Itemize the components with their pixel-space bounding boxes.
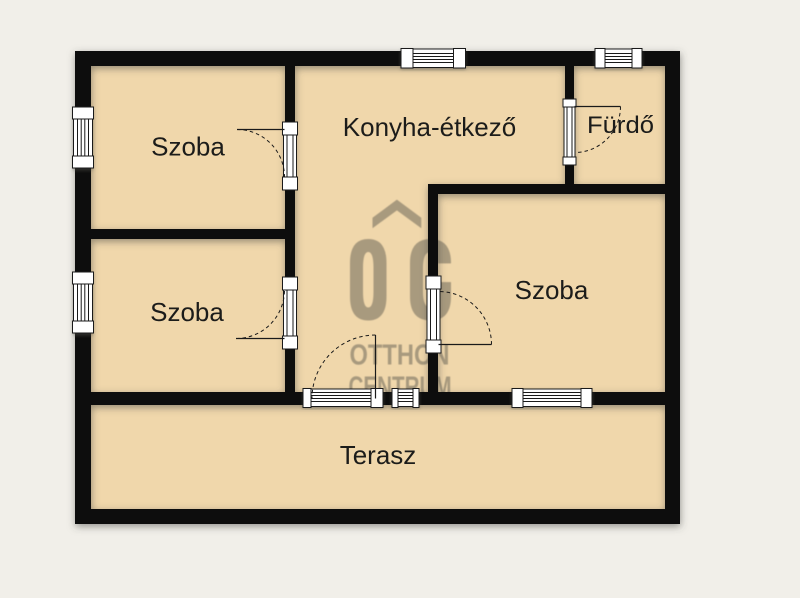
svg-text:Szoba: Szoba (515, 275, 589, 305)
svg-text:Terasz: Terasz (340, 440, 417, 470)
svg-text:Szoba: Szoba (151, 132, 225, 162)
svg-text:Konyha-étkező: Konyha-étkező (343, 112, 516, 142)
svg-text:Szoba: Szoba (150, 297, 224, 327)
svg-text:Fürdő: Fürdő (587, 112, 654, 139)
